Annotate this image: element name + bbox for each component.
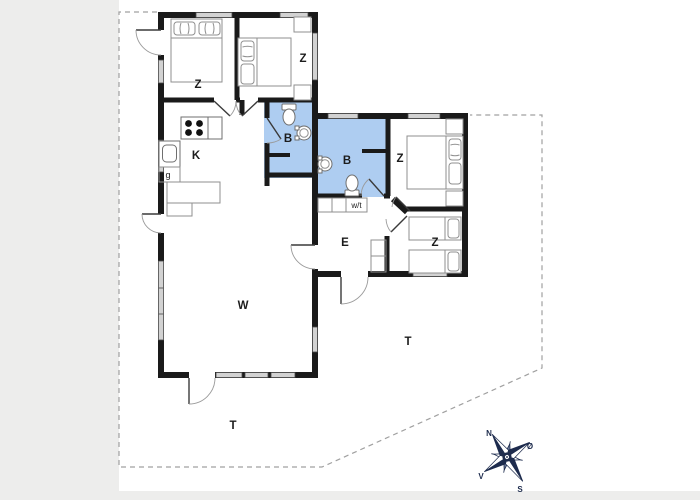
label-bedroom-4: Z xyxy=(431,237,438,249)
compass-south-label: S xyxy=(517,485,523,494)
stove-icon xyxy=(181,117,208,139)
label-living-room: W xyxy=(238,300,249,312)
compass-rose: N Ø V S xyxy=(470,420,546,496)
left-margin xyxy=(0,0,119,500)
compass-east-label: Ø xyxy=(527,442,533,451)
compass-west-label: V xyxy=(478,472,484,481)
bottom-margin xyxy=(0,491,700,500)
label-bathroom-2: B xyxy=(343,155,351,167)
label-bedroom-2: Z xyxy=(299,53,306,65)
label-cupboard-g: g xyxy=(165,170,170,180)
label-terrace-east: T xyxy=(404,336,411,348)
label-kitchen: K xyxy=(192,150,201,162)
compass-north-label: N xyxy=(486,429,492,438)
label-bathroom-1: B xyxy=(284,133,292,145)
label-bedroom-1: Z xyxy=(194,79,201,91)
label-terrace-south: T xyxy=(229,420,236,432)
floor-plan-page: Z Z Z Z K g B B w/t E W T T xyxy=(0,0,700,500)
label-bedroom-3: Z xyxy=(396,153,403,165)
label-washer-dryer: w/t xyxy=(350,201,362,210)
floor-plan-svg: Z Z Z Z K g B B w/t E W T T xyxy=(0,0,700,500)
label-entrance: E xyxy=(341,237,349,249)
bed-bedroom-1 xyxy=(171,19,222,82)
